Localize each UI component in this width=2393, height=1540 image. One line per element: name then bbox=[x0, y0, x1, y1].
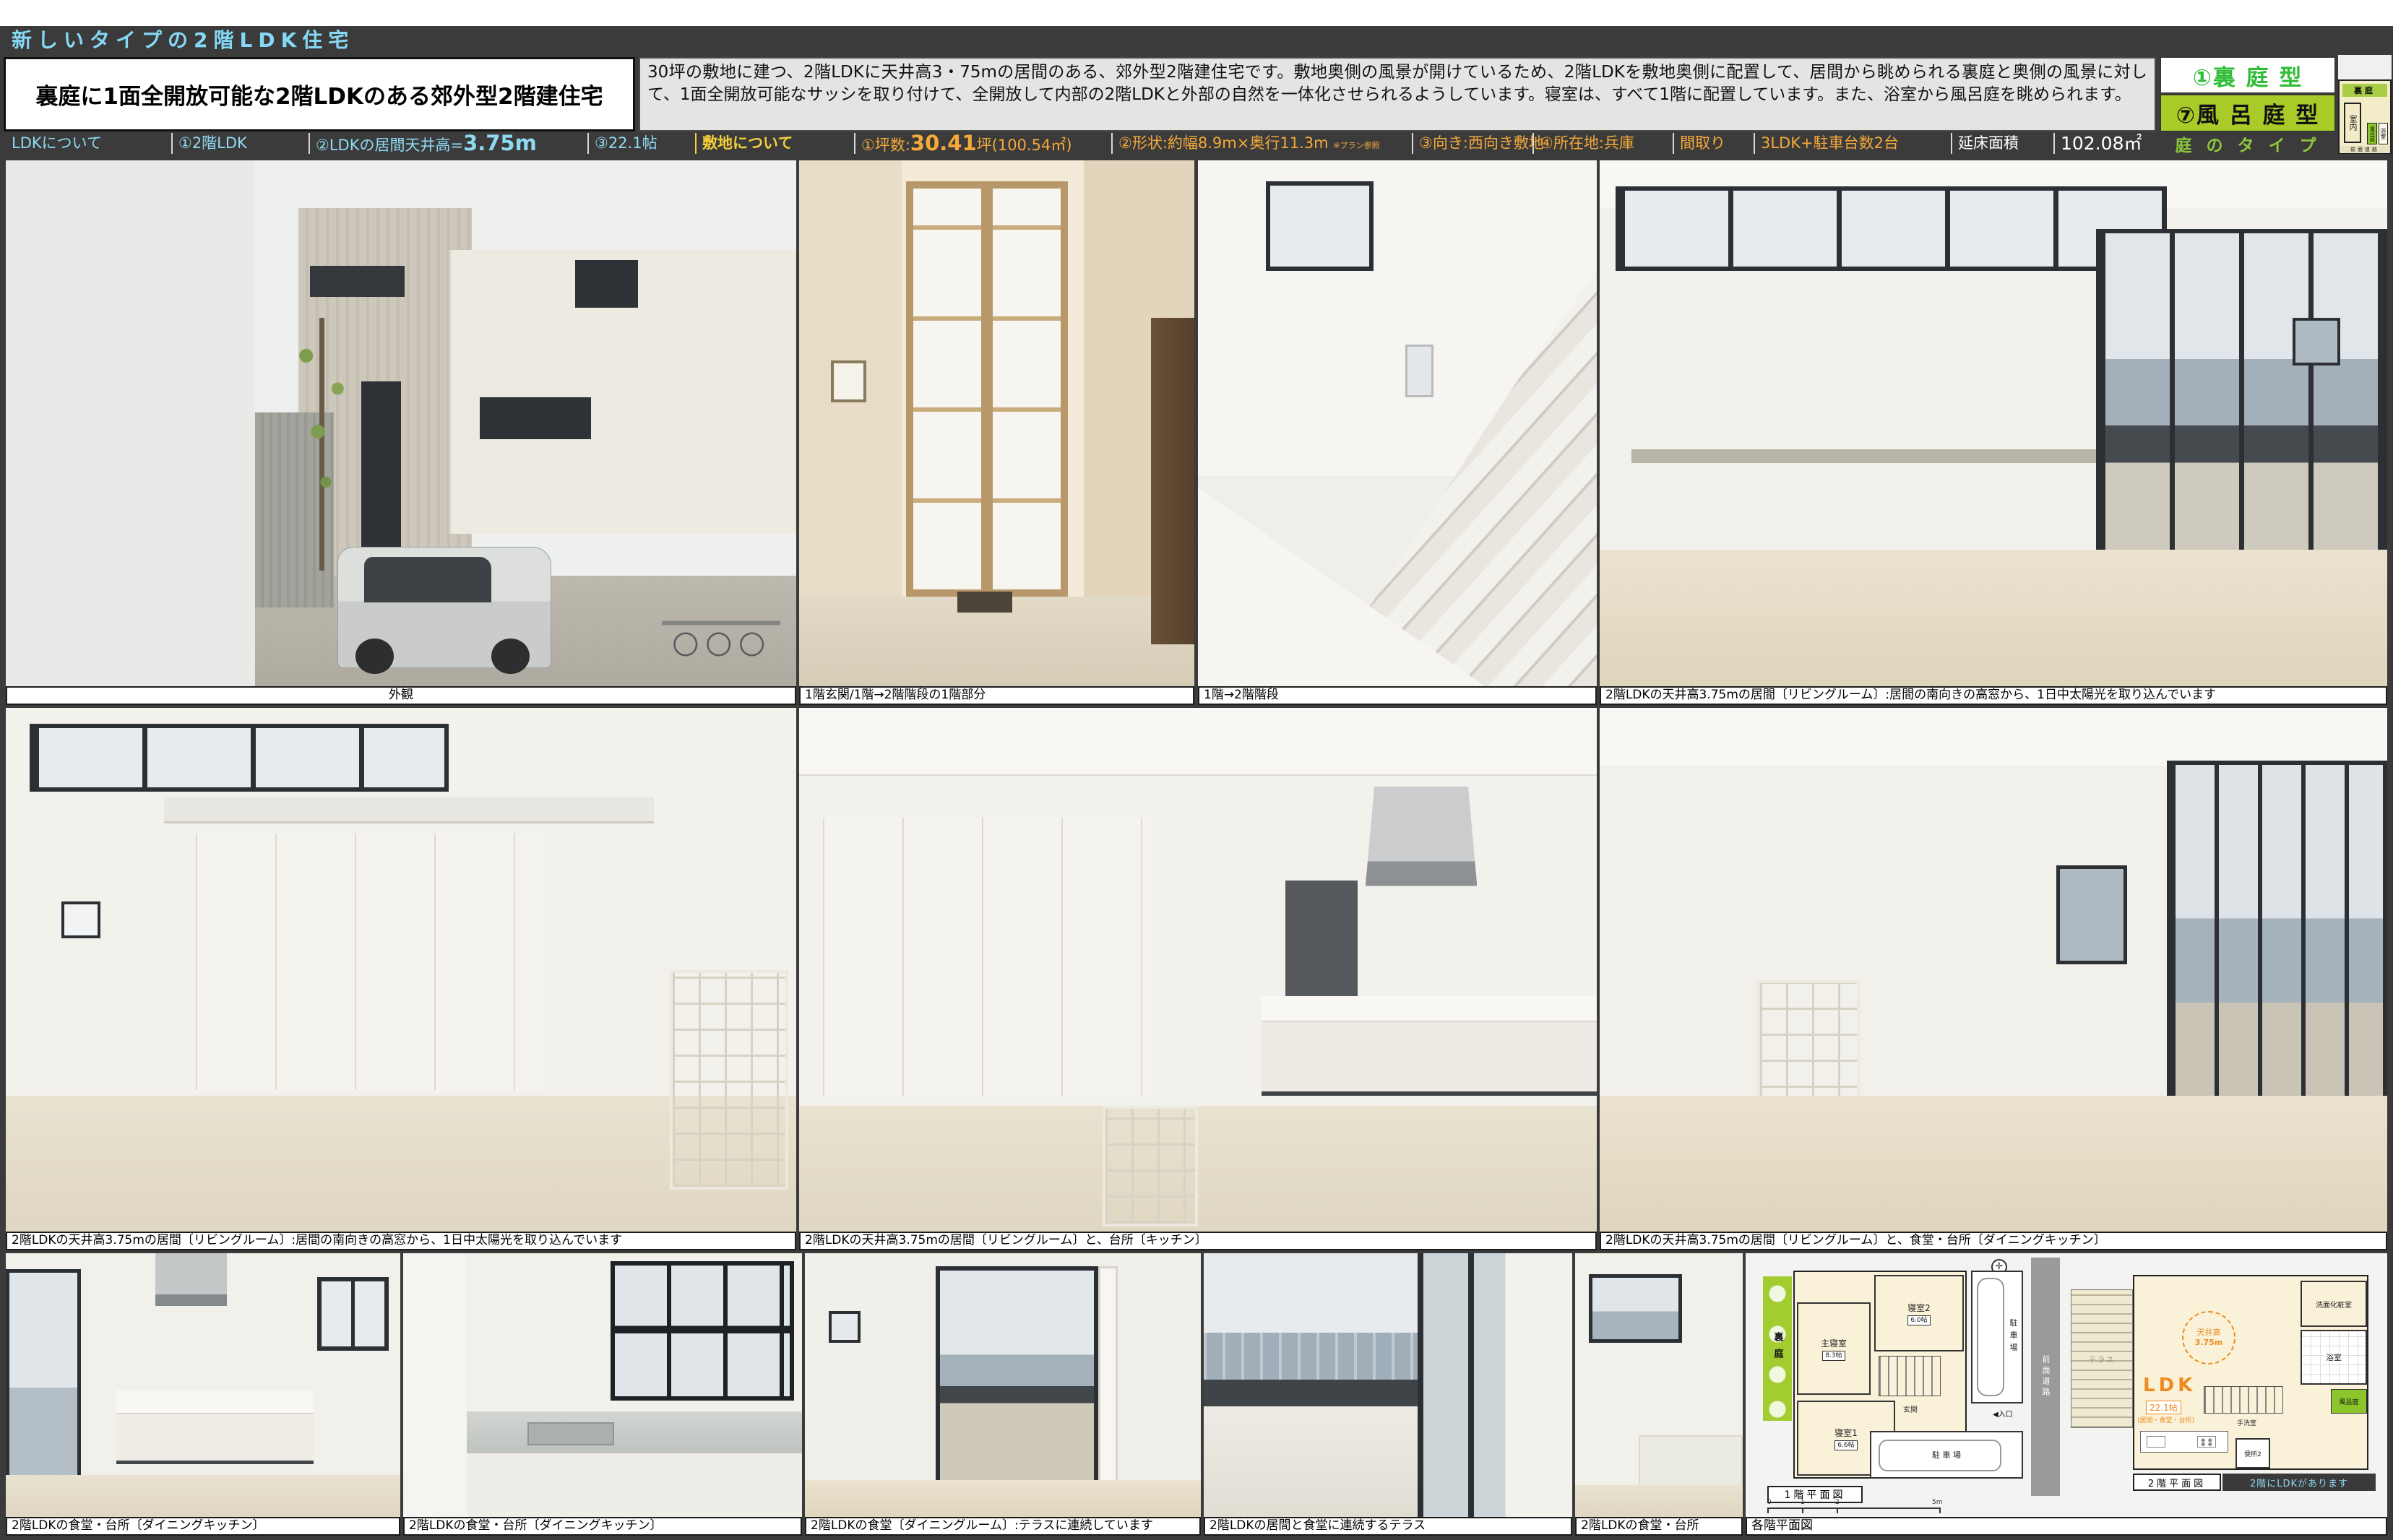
wood-floor bbox=[1600, 550, 2387, 686]
caption-living-kitchen: 2階LDKの天井高3.75mの居間〔リビングルーム〕と、台所〔キッチン〕 bbox=[799, 1232, 1597, 1250]
folding-door-frames bbox=[2100, 233, 2383, 603]
washroom-label: 洗面化粧室 bbox=[2316, 1299, 2352, 1310]
window-strip bbox=[310, 266, 405, 298]
parking-bottom: 駐 車 場 bbox=[1870, 1431, 2023, 1479]
small-window bbox=[61, 901, 101, 938]
stove-symbol bbox=[2197, 1436, 2216, 1448]
scale-tick bbox=[1802, 1507, 1803, 1513]
caption-terrace: 2階LDKの居間と食堂に連続するテラス bbox=[1204, 1517, 1572, 1536]
diagram-bath-garden-label: 風呂庭 bbox=[2367, 123, 2377, 144]
spec-site-item2: ②形状:約幅8.9m×奥行11.3m ※プラン参照 bbox=[1111, 133, 1409, 154]
island-counter-front bbox=[116, 1414, 314, 1464]
kitchen-opening bbox=[1285, 881, 1357, 1006]
entrance-label: 玄関 bbox=[1903, 1403, 1918, 1414]
spec-site-item1-prefix: ①坪数: bbox=[861, 137, 910, 154]
sink-symbol bbox=[2147, 1436, 2165, 1448]
diagram-margin bbox=[2338, 55, 2392, 79]
bedroom2-room: 寝室2 6.0帖 bbox=[1874, 1275, 1964, 1351]
ceiling-height-value: 3.75m bbox=[2195, 1338, 2223, 1348]
glazed-door bbox=[913, 189, 1061, 589]
photo-staircase bbox=[1198, 160, 1597, 686]
ceiling-recess bbox=[164, 797, 654, 823]
master-bedroom-label: 主寝室 bbox=[1821, 1337, 1847, 1349]
spec-floor-area-value: 102.08㎡ bbox=[2053, 133, 2157, 154]
photo-dining-terrace bbox=[805, 1253, 1201, 1517]
photo-kitchen-counter bbox=[403, 1253, 802, 1517]
photo-dining-kitchen-1 bbox=[6, 1253, 400, 1517]
entry-label: ◀入口 bbox=[1993, 1408, 2013, 1419]
photo-terrace bbox=[1204, 1253, 1572, 1517]
scale-tick bbox=[1837, 1507, 1838, 1513]
glass-doors-left bbox=[6, 1269, 81, 1485]
scale-0: 0 bbox=[1767, 1499, 1772, 1506]
page: 新しいタイプの2階LDK住宅 裏庭に1面全開放可能な2階LDKのある郊外型2階建… bbox=[0, 0, 2393, 1540]
photo-living-highwindow bbox=[6, 708, 796, 1232]
spec-site-item2-text: ②形状:約幅8.9m×奥行11.3m bbox=[1118, 134, 1329, 152]
folded-panel bbox=[1098, 1266, 1118, 1485]
scale-2: 2 bbox=[1835, 1499, 1840, 1506]
spec-ldk-item2-value: 3.75m bbox=[463, 131, 537, 155]
clerestory-windows bbox=[30, 724, 449, 792]
spec-ldk-item2-prefix: ②LDKの居間天井高= bbox=[316, 137, 463, 154]
garden-type-7-badge: ⑦風 呂 庭 型 bbox=[2160, 95, 2335, 131]
bathroom-room: 浴室 bbox=[2301, 1330, 2367, 1385]
front-road-label: 前面道路 bbox=[2040, 1355, 2051, 1398]
floor bbox=[6, 1475, 400, 1517]
spec-site-item1-value: 30.41 bbox=[910, 131, 977, 155]
stair-lattice bbox=[670, 970, 788, 1190]
diagram-backyard-label: 裏庭 bbox=[2342, 84, 2387, 97]
garden-tree bbox=[283, 318, 361, 570]
window-right bbox=[317, 1277, 388, 1351]
ldk-size: 22.1帖 bbox=[2146, 1401, 2181, 1414]
diagram-bathroom-label: 浴室 bbox=[2379, 123, 2388, 144]
stainless-counter bbox=[467, 1411, 802, 1453]
spec-site-item1: ①坪数:30.41坪(100.54㎡) bbox=[854, 133, 1108, 154]
bathroom-label: 浴室 bbox=[2324, 1351, 2343, 1363]
open-terrace-door bbox=[936, 1266, 1098, 1485]
spec-layout-label: 間取り bbox=[1673, 133, 1751, 154]
floor-plan-panel: 前面道路 ✛ 裏庭 寝室2 6.0帖 主寝室 8.3帖 寝室1 6.6帖 bbox=[1746, 1253, 2387, 1517]
range-hood bbox=[1366, 787, 1478, 886]
scale-1: 1 bbox=[1801, 1499, 1805, 1506]
bath-garden-label: 風呂庭 bbox=[2339, 1397, 2358, 1406]
terrace-label: テラス bbox=[2089, 1354, 2115, 1364]
parking-bottom-label: 駐 車 場 bbox=[1932, 1449, 1961, 1461]
floor bbox=[1575, 1485, 1743, 1517]
parked-car bbox=[337, 547, 551, 667]
stair-window bbox=[1266, 181, 1374, 271]
spec-site-item3: ③向き:西向き敷地 bbox=[1412, 133, 1530, 154]
backyard-label: 裏庭 bbox=[1771, 1332, 1785, 1365]
counter-top bbox=[1262, 996, 1597, 1022]
glass-door-right bbox=[1418, 1253, 1572, 1517]
toilet2-room: 便所2 bbox=[2235, 1438, 2270, 1468]
bedroom2-size: 6.0帖 bbox=[1907, 1315, 1930, 1325]
plan-1f-title: 1階平面図 bbox=[1767, 1486, 1863, 1503]
page-title-bar: 新しいタイプの2階LDK住宅 bbox=[0, 26, 2393, 55]
window bbox=[1589, 1274, 1683, 1343]
front-road-strip: 前面道路 bbox=[2031, 1258, 2060, 1496]
ceiling-height-mark: 天井高 3.75m bbox=[2182, 1311, 2235, 1364]
spec-site-item1-suffix: 坪(100.54㎡) bbox=[977, 137, 1072, 154]
car-wheel-rear bbox=[491, 639, 530, 675]
photo-living-kitchen bbox=[799, 708, 1597, 1232]
side-wall bbox=[403, 1253, 467, 1517]
clerestory-windows bbox=[1616, 186, 2167, 270]
balcony-rail bbox=[1204, 1380, 1418, 1406]
caption-stairs: 1階→2階階段 bbox=[1198, 686, 1597, 705]
wood-floor bbox=[805, 1480, 1201, 1517]
doorstep-shadow bbox=[957, 592, 1013, 613]
scale-tick bbox=[1939, 1507, 1941, 1513]
photo-living-dining bbox=[1600, 708, 2387, 1232]
bedroom1-label: 寝室1 bbox=[1834, 1427, 1858, 1439]
stairs-1f bbox=[1879, 1356, 1941, 1396]
spec-ldk-item3: ③22.1帖 bbox=[587, 133, 692, 154]
closet-doors bbox=[823, 818, 1150, 1095]
car-wheel-front bbox=[355, 639, 394, 675]
scale-bar: 0 1 2 5m bbox=[1767, 1507, 1941, 1515]
ceiling bbox=[1600, 708, 2387, 766]
house-outline-2f: 天井高 3.75m LDK 22.1帖 (居間・食堂・台所) 洗面化粧室 浴室 … bbox=[2133, 1275, 2368, 1470]
spec-site-label: 敷地について bbox=[695, 133, 851, 154]
city-skyline bbox=[1204, 1333, 1418, 1380]
spec-site-item4: ④所在地:兵庫 bbox=[1532, 133, 1670, 154]
top-margin bbox=[0, 0, 2393, 26]
door-frame bbox=[906, 181, 1068, 597]
ldk-label: LDK bbox=[2143, 1375, 2196, 1396]
diagram-interior-label: 室内 bbox=[2344, 103, 2361, 143]
spec-floor-area-label: 延床面積 bbox=[1951, 133, 2051, 154]
landing-panel bbox=[1405, 345, 1433, 397]
garden-diagram: 裏庭 室内 風呂庭 浴室 前面道路 bbox=[2338, 79, 2392, 154]
caption-dk-1: 2階LDKの食堂・台所〔ダイニングキッチン〕 bbox=[6, 1517, 400, 1536]
caption-dk-3: 2階LDKの食堂・台所 bbox=[1575, 1517, 1743, 1536]
bath-garden-room: 風呂庭 bbox=[2331, 1389, 2367, 1414]
caption-living-dining: 2階LDKの天井高3.75mの居間〔リビングルーム〕と、食堂・台所〔ダイニングキ… bbox=[1600, 1232, 2387, 1250]
site-1f: 裏庭 寝室2 6.0帖 主寝室 8.3帖 寝室1 6.6帖 玄関 bbox=[1762, 1266, 2026, 1483]
entrance-recess bbox=[361, 381, 401, 561]
city-window bbox=[2293, 318, 2340, 365]
site-2f: テラス 天井高 3.75m LDK 22.1帖 (居間・食堂・台所) 洗面化粧室… bbox=[2071, 1275, 2368, 1470]
spec-ldk-item2: ②LDKの居間天井高=3.75m bbox=[309, 133, 585, 154]
garden-type-1-badge: ①裏 庭 型 bbox=[2160, 57, 2335, 93]
caption-entrance: 1階玄関/1階→2階階段の1階部分 bbox=[799, 686, 1194, 705]
counter-front bbox=[1262, 1022, 1597, 1096]
washroom-room: 洗面化粧室 bbox=[2301, 1281, 2367, 1327]
bedroom1-size: 6.6帖 bbox=[1834, 1440, 1857, 1450]
sink bbox=[527, 1422, 615, 1445]
island-counter-top bbox=[116, 1390, 314, 1414]
closet-doors bbox=[196, 834, 543, 1090]
master-bedroom-size: 8.3帖 bbox=[1822, 1351, 1845, 1361]
plan-2f-title: 2階平面図 bbox=[2133, 1474, 2221, 1491]
parapet-wall bbox=[1204, 1406, 1418, 1517]
caption-dk-2: 2階LDKの食堂・台所〔ダイニングキッチン〕 bbox=[403, 1517, 802, 1536]
folding-glass-doors bbox=[2167, 761, 2387, 1154]
door-mullions bbox=[2171, 765, 2383, 1149]
car-windows bbox=[364, 557, 491, 602]
photo-living-balcony bbox=[1600, 160, 2387, 686]
cabinet-front bbox=[467, 1453, 802, 1517]
grid-windows bbox=[611, 1261, 794, 1401]
backyard-strip: 裏庭 bbox=[1763, 1276, 1792, 1421]
ceiling-height-label: 天井高 bbox=[2197, 1328, 2221, 1338]
caption-living-2: 2階LDKの天井高3.75mの居間〔リビングルーム〕:居間の南向きの高窓から、1… bbox=[6, 1232, 796, 1250]
ceiling bbox=[799, 708, 1597, 776]
wall-base-line bbox=[1631, 449, 2096, 462]
bedroom2-label: 寝室2 bbox=[1907, 1302, 1931, 1314]
range-hood bbox=[155, 1253, 226, 1306]
spec-layout-value: 3LDK+駐車台数2台 bbox=[1754, 133, 1948, 154]
upper-window bbox=[575, 260, 639, 308]
caption-dining-room: 2階LDKの食堂〔ダイニングルーム〕:テラスに連続しています bbox=[805, 1517, 1201, 1536]
stair-lattice bbox=[1103, 1106, 1198, 1227]
main-title: 裏庭に1面全開放可能な2階LDKのある郊外型2階建住宅 bbox=[4, 57, 635, 131]
floor bbox=[799, 1106, 1597, 1232]
caption-exterior: 外観 bbox=[6, 686, 796, 705]
master-bedroom-room: 主寝室 8.3帖 bbox=[1797, 1302, 1871, 1395]
toilet2-label: 便所2 bbox=[2244, 1449, 2262, 1458]
scale-tick bbox=[1767, 1507, 1769, 1513]
photo-entrance-hall bbox=[799, 160, 1194, 686]
photo-exterior bbox=[6, 160, 796, 686]
caption-floor-plans: 各階平面図 bbox=[1746, 1517, 2387, 1536]
diagram-front-road-label: 前面道路 bbox=[2340, 146, 2390, 153]
stairs-2f bbox=[2204, 1386, 2283, 1414]
parking-top: 駐車場 bbox=[1971, 1271, 2023, 1403]
bicycles bbox=[662, 597, 780, 659]
hall-window bbox=[831, 360, 866, 402]
photo-dining-small bbox=[1575, 1253, 1743, 1517]
spec-site-item2-note: ※プラン参照 bbox=[1333, 141, 1379, 150]
caption-living-1: 2階LDKの天井高3.75mの居間〔リビングルーム〕:居間の南向きの高窓から、1… bbox=[1600, 686, 2387, 705]
ldk-rooms: (居間・食堂・台所) bbox=[2137, 1415, 2194, 1424]
door-frame-bar bbox=[1468, 1253, 1474, 1517]
garden-type-label: 庭 の タ イ プ bbox=[2160, 133, 2335, 154]
lower-window bbox=[480, 397, 590, 439]
spec-ldk-label: LDKについて bbox=[6, 133, 168, 154]
handwash-label: 手洗室 bbox=[2237, 1418, 2256, 1427]
terrace-area: テラス bbox=[2071, 1289, 2133, 1428]
mid-window bbox=[2056, 865, 2127, 965]
car-outline-top bbox=[1977, 1278, 2004, 1396]
plan-2f-note: 2階にLDKがあります bbox=[2222, 1474, 2376, 1491]
description-text: 30坪の敷地に建つ、2階LDKに天井高3・75mの居間のある、郊外型2階建住宅で… bbox=[639, 57, 2156, 131]
wood-floor bbox=[1600, 1096, 2387, 1232]
parking-top-label: 駐車場 bbox=[2007, 1319, 2019, 1356]
side-window bbox=[829, 1311, 861, 1343]
spec-ldk-item1: ①2階LDK bbox=[171, 133, 306, 154]
blank-margin bbox=[6, 160, 255, 686]
scale-5m: 5m bbox=[1932, 1499, 1943, 1506]
kitchen-counter-plan bbox=[2140, 1431, 2228, 1453]
dark-cabinet bbox=[1151, 318, 1194, 644]
